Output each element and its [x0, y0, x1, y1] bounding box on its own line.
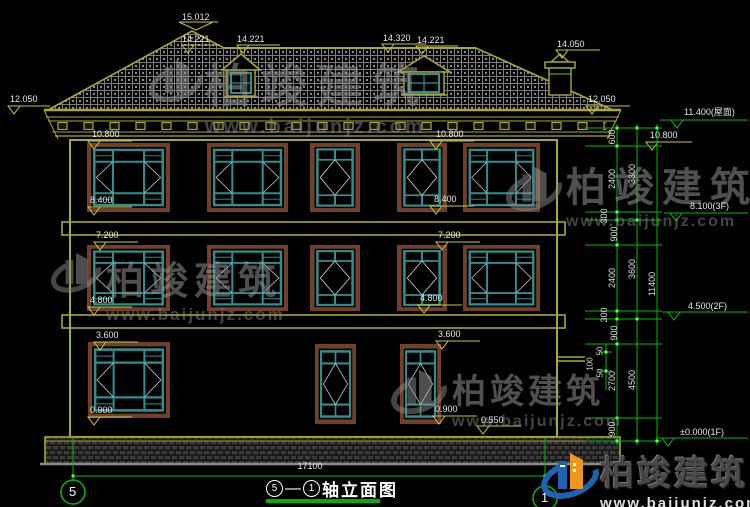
- dim-label: 900: [607, 421, 617, 436]
- level-mark-upper-left: 14.221: [182, 34, 210, 44]
- window: [317, 346, 354, 421]
- title-dash: —: [285, 480, 301, 498]
- level-mark: 7.200: [438, 230, 461, 240]
- level-mark: 8.400: [90, 195, 113, 205]
- level-mark-ridge: 15.012: [182, 12, 210, 22]
- window: [312, 145, 357, 210]
- dim-label: 2400: [607, 268, 617, 288]
- level-mark: 0.900: [435, 404, 458, 414]
- window: [209, 145, 286, 210]
- dimension-ticks: [72, 127, 659, 478]
- level-mark-chimney: 14.050: [557, 39, 585, 49]
- roof: [48, 31, 613, 110]
- dim-label: 300: [599, 208, 609, 223]
- window: [209, 247, 286, 309]
- level-mark-roof-surface: 11.400(屋面): [684, 107, 735, 117]
- level-mark-eave-right: 12.050: [588, 94, 616, 104]
- level-mark-floor3: 8.100(3F): [690, 201, 729, 211]
- dim-label: 900: [609, 226, 619, 241]
- level-mark-eave-left: 12.050: [10, 94, 38, 104]
- level-mark: 3.600: [96, 330, 119, 340]
- level-mark: 0.550: [481, 415, 504, 425]
- level-mark-dormer-left: 14.221: [237, 34, 265, 44]
- window: [465, 145, 538, 210]
- level-mark-ridge-right: 14.320: [383, 33, 411, 43]
- elevation-drawing: [0, 0, 750, 507]
- axis-bubble-1: 1: [541, 490, 548, 505]
- dim-label-overall: 11400: [647, 272, 657, 296]
- dim-label: 100: [586, 357, 595, 370]
- axis-bubble-5: 5: [69, 484, 76, 499]
- level-mark: 10.800: [436, 129, 464, 139]
- windows-floor2: [89, 247, 538, 309]
- level-mark: 4.800: [90, 295, 113, 305]
- eave-cornice: [44, 110, 621, 139]
- level-mark-window-top: 10.800: [650, 130, 678, 140]
- level-mark: 3.600: [438, 329, 461, 339]
- dim-label: 50: [596, 369, 605, 378]
- title-axis-right: 1: [303, 480, 320, 497]
- chimney: [545, 54, 575, 95]
- title-text: 轴立面图: [322, 476, 398, 501]
- dim-label: 600: [607, 129, 617, 144]
- level-mark: 4.800: [420, 293, 443, 303]
- level-mark-dormer-right: 14.221: [417, 35, 445, 45]
- wall-body: [62, 140, 585, 437]
- dim-label: 3300: [627, 164, 637, 184]
- title-axis-left: 5: [266, 480, 283, 497]
- level-mark: 10.800: [92, 129, 120, 139]
- plinth: [40, 437, 625, 464]
- windows-floor1: [90, 344, 439, 422]
- level-mark: 0.900: [90, 405, 113, 415]
- dim-label: 900: [609, 325, 619, 340]
- level-mark-floor2: 4.500(2F): [688, 301, 727, 311]
- drawing-title: 5 — 1 轴立面图: [266, 476, 398, 501]
- dim-label: 3600: [627, 259, 637, 279]
- dim-label: 2400: [607, 169, 617, 189]
- level-mark: 7.200: [96, 230, 119, 240]
- dim-label: 4500: [627, 370, 637, 390]
- window: [312, 247, 357, 309]
- level-mark-floor1: ±0.000(1F): [680, 427, 724, 437]
- level-mark: 8.400: [434, 194, 457, 204]
- dim-label: 50: [596, 347, 605, 356]
- title-underline: [266, 499, 380, 503]
- dim-label: 300: [599, 307, 609, 322]
- window: [465, 247, 538, 309]
- cad-elevation-screenshot: 柏竣建筑 www.baijunjz.com 柏竣建筑 www.baijunjz.…: [0, 0, 750, 507]
- window: [402, 346, 439, 421]
- dim-label: 2700: [607, 371, 617, 391]
- windows-floor3: [89, 145, 538, 210]
- dim-total-width: 17100: [288, 461, 332, 471]
